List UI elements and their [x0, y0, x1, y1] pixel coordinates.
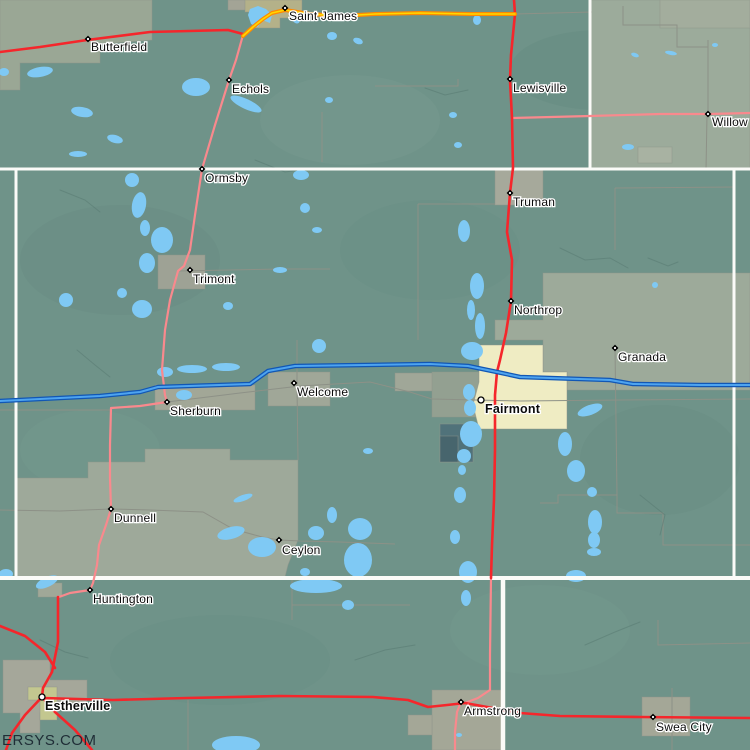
- lake: [132, 300, 152, 318]
- lake: [464, 400, 476, 416]
- lake: [293, 170, 309, 180]
- town-marker-center: [166, 401, 168, 403]
- lake: [223, 302, 233, 310]
- lake: [177, 365, 207, 373]
- lake: [652, 282, 658, 288]
- terrain-shade: [450, 585, 630, 675]
- town-label: Willow C: [712, 115, 750, 129]
- lake: [461, 590, 471, 606]
- town-marker-center: [284, 7, 286, 9]
- lake: [312, 339, 326, 353]
- lake: [139, 253, 155, 273]
- lake: [712, 43, 718, 47]
- lake: [342, 600, 354, 610]
- lake: [461, 342, 483, 360]
- town-marker-center: [460, 701, 462, 703]
- town-label: Northrop: [514, 303, 562, 317]
- lake: [312, 227, 322, 233]
- lake: [300, 568, 310, 576]
- lake: [117, 288, 127, 298]
- town-label: Saint James: [289, 9, 357, 23]
- lake: [308, 526, 324, 540]
- terrain-shade: [580, 405, 740, 515]
- town-marker-center: [614, 347, 616, 349]
- lake: [363, 448, 373, 454]
- lake: [300, 203, 310, 213]
- town-label: Welcome: [297, 385, 348, 399]
- town-label: Estherville: [45, 699, 110, 713]
- town-label: Trimont: [193, 272, 235, 286]
- lake: [558, 432, 572, 456]
- lake: [454, 142, 462, 148]
- town-label: Ceylon: [282, 543, 321, 557]
- town-marker-center: [89, 589, 91, 591]
- lake: [458, 220, 470, 242]
- lake: [588, 510, 602, 534]
- region-corner-northeast: [660, 0, 750, 28]
- town-label: Dunnell: [114, 511, 156, 525]
- town-label: Granada: [618, 350, 666, 364]
- region-armstrong-west: [408, 715, 432, 735]
- lake: [467, 300, 475, 320]
- region-fairmont-park-dark: [440, 436, 458, 462]
- town-marker-center: [189, 269, 191, 271]
- map-svg: Saint JamesButterfieldEcholsLewisvilleWi…: [0, 0, 750, 750]
- region-northeast-small: [638, 147, 672, 163]
- town-label: Butterfield: [91, 40, 147, 54]
- lake: [463, 384, 475, 400]
- lake: [348, 518, 372, 540]
- town-marker-center: [201, 168, 203, 170]
- town-marker-circle: [478, 397, 484, 403]
- lake: [125, 173, 139, 187]
- town-label: Swea City: [656, 720, 712, 734]
- lake: [449, 112, 457, 118]
- lake: [470, 273, 484, 299]
- town-marker-center: [110, 508, 112, 510]
- lake: [290, 579, 342, 593]
- town-label: Lewisville: [513, 81, 566, 95]
- lake: [140, 220, 150, 236]
- lake: [212, 363, 240, 371]
- town-label: Ormsby: [205, 171, 248, 185]
- lake: [157, 367, 173, 377]
- lake: [454, 487, 466, 503]
- town-label: Armstrong: [464, 704, 521, 718]
- lake: [567, 460, 585, 482]
- lake: [69, 151, 87, 157]
- town-label: Sherburn: [170, 404, 221, 418]
- lake: [151, 227, 173, 253]
- lake: [475, 313, 485, 339]
- lake: [457, 449, 471, 463]
- watermark: ERSYS.COM: [2, 732, 97, 749]
- lake: [473, 15, 481, 25]
- town-marker-center: [509, 78, 511, 80]
- lake: [622, 144, 634, 150]
- town-label: Huntington: [93, 592, 153, 606]
- terrain-shade: [260, 75, 440, 165]
- lake: [273, 267, 287, 273]
- terrain-shade: [340, 200, 520, 300]
- town-marker-center: [509, 192, 511, 194]
- map-viewport[interactable]: Saint JamesButterfieldEcholsLewisvilleWi…: [0, 0, 750, 750]
- town-label: Fairmont: [485, 402, 541, 416]
- town-marker-center: [652, 716, 654, 718]
- lake: [587, 487, 597, 497]
- lake: [588, 532, 600, 548]
- lake: [458, 465, 466, 475]
- lake: [456, 733, 462, 737]
- town-label: Truman: [513, 195, 555, 209]
- lake: [460, 421, 482, 447]
- town-marker-center: [293, 382, 295, 384]
- lake: [325, 97, 333, 103]
- lake: [59, 293, 73, 307]
- lake: [344, 543, 372, 577]
- town-marker-center: [87, 38, 89, 40]
- lake: [327, 507, 337, 523]
- town-marker-center: [510, 300, 512, 302]
- lake: [248, 537, 276, 557]
- lake: [176, 390, 192, 400]
- lake: [182, 78, 210, 96]
- lake: [450, 530, 460, 544]
- town-label: Echols: [232, 82, 269, 96]
- town-marker-center: [228, 79, 230, 81]
- lake: [327, 32, 337, 40]
- town-marker-center: [707, 113, 709, 115]
- town-marker-center: [278, 539, 280, 541]
- lake: [587, 548, 601, 556]
- region-armstrong-urban: [432, 690, 502, 750]
- terrain-shade: [110, 615, 330, 705]
- region-saint-james-west: [228, 0, 247, 10]
